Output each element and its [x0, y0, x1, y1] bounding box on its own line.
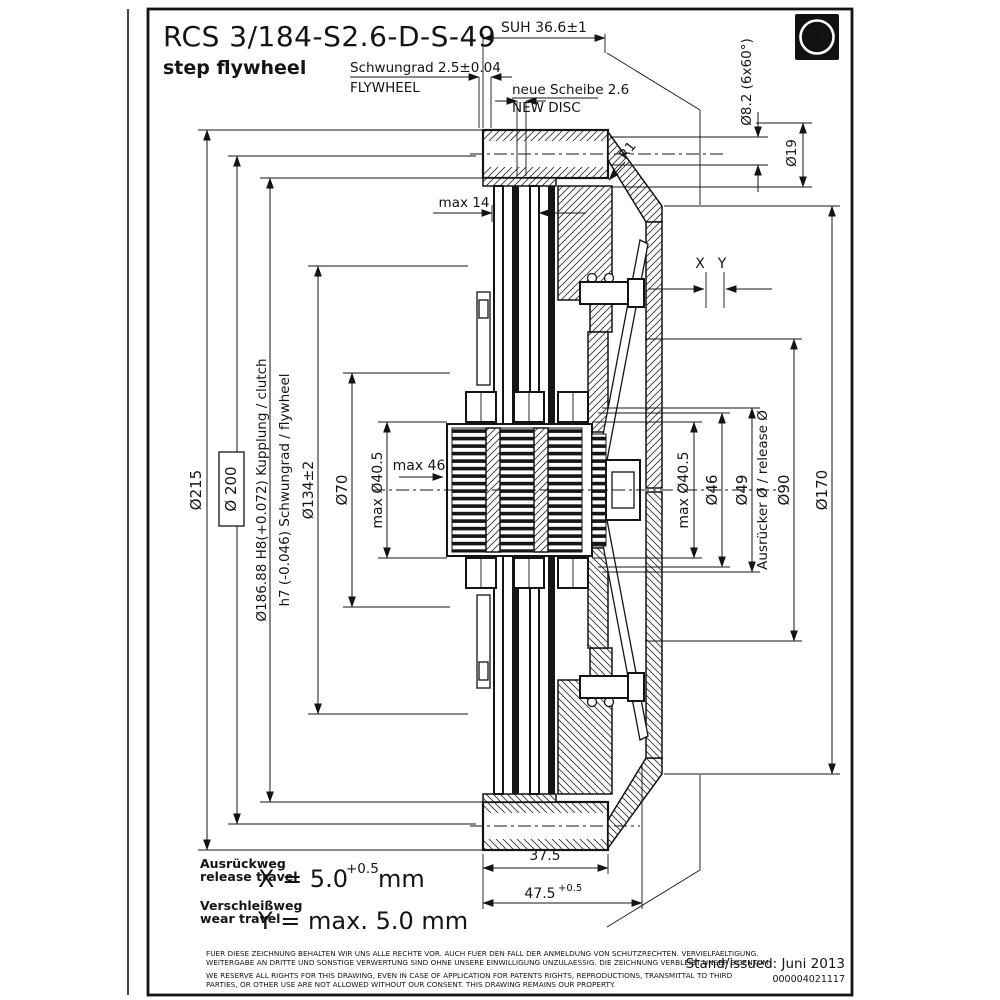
label-disc-en: NEW DISC — [512, 100, 581, 116]
label-max-d405-right: max Ø40.5 — [676, 451, 692, 528]
label-d49: Ø49 — [733, 475, 751, 506]
label-flywheel-en: FLYWHEEL — [350, 80, 420, 96]
label-d46: Ø46 — [703, 475, 721, 506]
drawing-sheet: RCS 3/184-S2.6-D-S-49 step flywheel ZF S… — [0, 0, 1000, 1000]
label-d186: Ø186.88 H8(+0.072) Kupplung / clutch — [254, 358, 270, 621]
label-max14: max 14 — [439, 195, 490, 211]
label-375: 37.5 — [529, 848, 560, 864]
label-d90: Ø90 — [775, 475, 793, 506]
label-d70: Ø70 — [333, 475, 351, 506]
label-d215: Ø215 — [187, 470, 205, 510]
label-flywheel-de: Schwungrad 2.5±0.04 — [350, 60, 501, 76]
zf-logo-text: ZF — [803, 27, 831, 49]
release-travel-unit: mm — [378, 865, 425, 893]
label-d170: Ø170 — [813, 470, 831, 510]
zf-logo: ZF — [795, 14, 839, 60]
label-h7: h7 (-0.046) Schwungrad / flywheel — [277, 373, 293, 606]
label-d19: Ø19 — [784, 139, 800, 167]
label-d200: Ø 200 — [222, 466, 240, 511]
release-travel-tol: +0.5 — [346, 861, 379, 877]
issued-date: Stand/issued: Juni 2013 — [686, 956, 845, 972]
release-travel-value: X = 5.0 — [258, 865, 348, 893]
label-disc-de: neue Scheibe 2.6 — [512, 82, 629, 98]
label-max-d405-left: max Ø40.5 — [370, 451, 386, 528]
legal-en-2: PARTIES, OR OTHER USE ARE NOT ALLOWED WI… — [206, 980, 615, 989]
bottom-dimension-labels: 37.5 47.5 +0.5 — [524, 848, 582, 902]
diameter-labels-left: Ø215 Ø 200 Ø186.88 H8(+0.072) Kupplung /… — [187, 358, 386, 621]
label-release-dia: Ausrücker Ø / release Ø — [755, 410, 771, 570]
issued-block: Stand/issued: Juni 2013 000004021117 — [686, 956, 845, 985]
wear-travel-value: Y = max. 5.0 mm — [257, 907, 468, 935]
label-d134: Ø134±2 — [301, 461, 317, 519]
legal-en-1: WE RESERVE ALL RIGHTS FOR THIS DRAWING, … — [206, 971, 733, 980]
label-475-tol: +0.5 — [558, 883, 582, 894]
diameter-labels-right: max Ø40.5 Ø46 Ø49 Ausrücker Ø / release … — [676, 410, 831, 570]
legal-de-1: FUER DIESE ZEICHNUNG BEHALTEN WIR UNS AL… — [206, 949, 759, 958]
travel-block: Ausrückweg release travel X = 5.0 +0.5 m… — [200, 856, 468, 935]
label-max46: max 46 — [393, 458, 446, 474]
drawing-title: RCS 3/184-S2.6-D-S-49 — [163, 20, 496, 53]
label-x: X — [695, 256, 705, 272]
label-475: 47.5 — [524, 886, 555, 902]
doc-number: 000004021117 — [772, 974, 845, 985]
label-suh: SUH 36.6±1 — [501, 20, 587, 36]
label-bolt-holes: Ø8.2 (6x60°) — [739, 38, 755, 125]
technical-drawing: RCS 3/184-S2.6-D-S-49 step flywheel ZF S… — [0, 0, 1000, 1000]
label-y: Y — [717, 256, 727, 272]
drawing-subtitle: step flywheel — [163, 57, 306, 79]
